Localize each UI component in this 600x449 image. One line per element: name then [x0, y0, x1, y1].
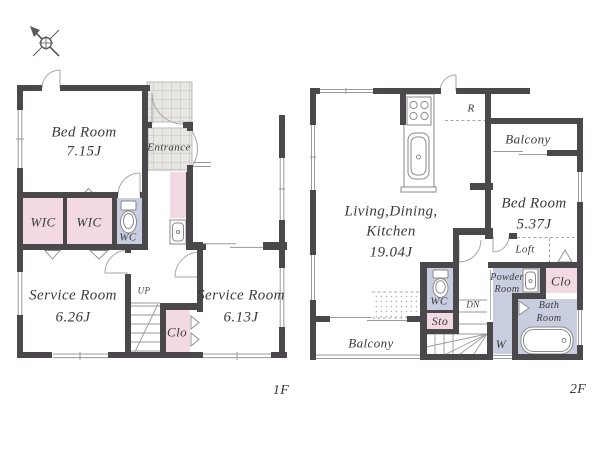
room-label-balcony-bottom: Balcony: [348, 337, 393, 350]
stove-icon: [407, 97, 431, 125]
room-label-storage: Sto: [432, 315, 449, 327]
toilet-icon-1f: [121, 201, 137, 233]
room-label-entrance: Entrance: [147, 143, 191, 154]
folding-door-icon: [191, 333, 199, 346]
washer-label: W: [496, 338, 506, 350]
floor-plan-page: Bed Room 7.15J Entrance WIC WIC WC Servi…: [0, 0, 600, 449]
room-label-bedroom-1f: Bed Room: [51, 126, 116, 141]
folding-door-icon: [191, 316, 199, 329]
folding-door-icon: [90, 251, 108, 260]
room-label-ldk-line1: Living,Dining,: [344, 205, 437, 220]
refrigerator-label: R: [467, 104, 474, 115]
floor-texture-area: [372, 292, 420, 318]
floor-label-1f: 1F: [273, 384, 289, 398]
room-label-ldk-line2: Kitchen: [366, 225, 415, 240]
toilet-icon-2f: [433, 270, 448, 298]
room-label-wc-2f: WC: [430, 297, 447, 308]
room-size-service-right: 6.13J: [224, 311, 259, 326]
floor-label-2f: 2F: [570, 383, 586, 397]
room-size-service-left: 6.26J: [56, 311, 91, 326]
room-label-bath-line1: Bath: [539, 301, 560, 311]
stairs-up-label: UP: [138, 287, 151, 296]
room-label-wic-left: WIC: [30, 216, 55, 229]
bathtub-icon: [521, 327, 573, 354]
room-label-service-right: Service Room: [197, 289, 285, 304]
shoe-cabinet: [170, 172, 186, 218]
loft-label: Loft: [515, 245, 534, 256]
room-label-bedroom-2f: Bed Room: [501, 197, 566, 212]
folding-door-icon: [558, 250, 572, 262]
powder-washbasin-icon: [523, 269, 538, 292]
room-label-closet-2f: Clo: [551, 275, 571, 288]
room-label-wic-right: WIC: [76, 216, 101, 229]
folding-door-icon: [45, 251, 60, 260]
stairs-up-icon: [131, 303, 160, 356]
room-label-powder-line2: Room: [495, 285, 520, 295]
room-label-balcony-top: Balcony: [505, 133, 550, 146]
room-label-service-left: Service Room: [29, 289, 117, 304]
room-label-wc-1f: WC: [119, 233, 136, 244]
kitchen-counter: [401, 94, 436, 192]
room-label-powder-line1: Powder: [490, 273, 524, 283]
north-arrow-icon: [30, 26, 59, 56]
kitchen-sink-icon: [408, 133, 429, 179]
room-size-bedroom-1f: 7.15J: [67, 145, 102, 160]
stairs-down-label: DN: [466, 301, 479, 310]
room-label-bath-line2: Room: [537, 314, 562, 324]
room-label-closet-1f: Clo: [167, 326, 187, 339]
washbasin-icon: [170, 220, 186, 244]
room-size-ldk: 19.04J: [370, 246, 413, 261]
room-size-bedroom-2f: 5.37J: [517, 218, 552, 233]
